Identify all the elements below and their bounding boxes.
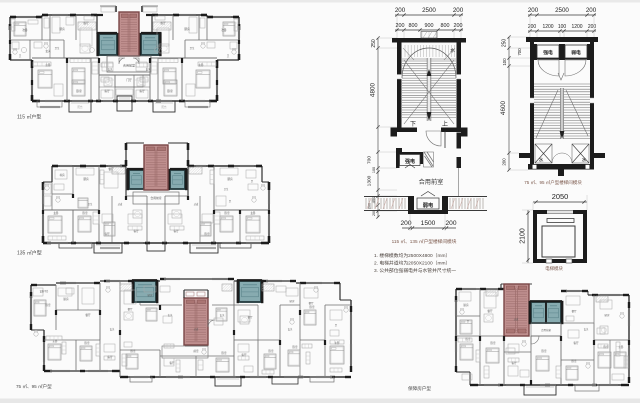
svg-text:100: 100 <box>502 58 507 66</box>
svg-text:合用前室: 合用前室 <box>541 328 552 332</box>
svg-text:卧室: 卧室 <box>465 337 471 341</box>
svg-text:卧室: 卧室 <box>76 89 82 93</box>
svg-text:主卧: 主卧 <box>52 339 58 343</box>
svg-text:水: 水 <box>450 47 455 53</box>
svg-text:次卧: 次卧 <box>221 28 227 32</box>
svg-text:200: 200 <box>396 23 405 29</box>
svg-text:客厅: 客厅 <box>133 229 139 233</box>
svg-text:主卧: 主卧 <box>45 63 51 67</box>
svg-text:水: 水 <box>582 157 587 164</box>
svg-text:200: 200 <box>454 23 463 29</box>
svg-text:主卧: 主卧 <box>53 211 59 215</box>
svg-text:卧室: 卧室 <box>82 211 88 215</box>
svg-text:1300: 1300 <box>367 175 373 186</box>
svg-text:200: 200 <box>588 24 597 30</box>
svg-text:餐厅: 餐厅 <box>308 301 314 305</box>
svg-text:下: 下 <box>410 121 416 128</box>
svg-text:卧室: 卧室 <box>541 349 547 353</box>
svg-text:卧室: 卧室 <box>130 349 136 353</box>
svg-text:书房: 书房 <box>59 173 65 177</box>
svg-text:卧室: 卧室 <box>490 341 496 345</box>
svg-text:900: 900 <box>425 23 434 29</box>
svg-text:卫: 卫 <box>227 55 230 58</box>
svg-text:门厅: 门厅 <box>126 78 132 82</box>
svg-text:75 ㎡、95 ㎡户型楼梯间模块: 75 ㎡、95 ㎡户型楼梯间模块 <box>524 179 582 186</box>
svg-text:客厅: 客厅 <box>139 89 145 93</box>
svg-text:200: 200 <box>528 24 537 30</box>
svg-text:4600: 4600 <box>500 100 507 115</box>
svg-text:3. 公共部位强弱电井与水管井尺寸统一: 3. 公共部位强弱电井与水管井尺寸统一 <box>374 267 456 274</box>
svg-text:主卧: 主卧 <box>250 211 256 215</box>
svg-text:卫: 卫 <box>19 55 22 58</box>
svg-text:2500: 2500 <box>555 7 569 14</box>
svg-text:200: 200 <box>395 7 406 14</box>
svg-text:100: 100 <box>558 24 567 30</box>
svg-text:厨房: 厨房 <box>184 27 190 31</box>
svg-text:250: 250 <box>502 39 508 48</box>
svg-text:2. 电梯井道均为2050X2100（mm）: 2. 电梯井道均为2050X2100（mm） <box>374 260 450 267</box>
svg-text:卧室: 卧室 <box>571 359 577 363</box>
svg-text:主卧: 主卧 <box>198 63 204 67</box>
svg-text:1200: 1200 <box>571 24 582 30</box>
svg-text:餐厅: 餐厅 <box>247 315 253 319</box>
svg-text:次卧: 次卧 <box>22 28 28 32</box>
svg-text:75 ㎡、95 ㎡户型: 75 ㎡、95 ㎡户型 <box>16 383 52 390</box>
svg-text:合用前室: 合用前室 <box>123 63 135 68</box>
svg-text:餐厅: 餐厅 <box>571 309 577 313</box>
svg-text:1. 楼梯模数均为2500X4800（mm）: 1. 楼梯模数均为2500X4800（mm） <box>374 252 450 259</box>
svg-text:200: 200 <box>445 220 456 227</box>
svg-text:200: 200 <box>586 7 597 14</box>
svg-text:玄关: 玄关 <box>220 313 225 317</box>
svg-text:强电: 强电 <box>405 158 415 165</box>
svg-text:主卧: 主卧 <box>618 345 624 349</box>
svg-text:电梯模块: 电梯模块 <box>545 265 563 272</box>
svg-text:厨房: 厨房 <box>147 293 153 297</box>
svg-text:1500: 1500 <box>421 220 436 227</box>
svg-text:客厅: 客厅 <box>241 353 247 357</box>
svg-text:200: 200 <box>453 7 464 14</box>
svg-text:弱电: 弱电 <box>423 201 434 209</box>
svg-text:厨房: 厨房 <box>83 177 89 181</box>
svg-text:2500: 2500 <box>422 7 436 14</box>
svg-text:200: 200 <box>502 158 507 166</box>
svg-text:水: 水 <box>539 157 544 164</box>
svg-text:卧室: 卧室 <box>204 232 210 236</box>
svg-text:厨房: 厨房 <box>59 27 65 31</box>
svg-text:弱电: 弱电 <box>571 49 581 56</box>
svg-text:卧室: 卧室 <box>45 303 51 307</box>
svg-text:115 ㎡、135 ㎡户型楼梯间模块: 115 ㎡、135 ㎡户型楼梯间模块 <box>392 238 457 245</box>
svg-text:卫生: 卫生 <box>190 46 195 50</box>
svg-text:厨房: 厨房 <box>604 313 610 317</box>
svg-text:800: 800 <box>409 23 418 29</box>
svg-text:100: 100 <box>372 167 376 173</box>
svg-text:115 ㎡户型: 115 ㎡户型 <box>17 114 41 121</box>
svg-text:2050: 2050 <box>552 192 568 201</box>
svg-text:4800: 4800 <box>370 82 377 97</box>
svg-text:餐厅: 餐厅 <box>127 307 133 311</box>
svg-text:上: 上 <box>442 120 448 128</box>
svg-text:阳台: 阳台 <box>77 105 83 109</box>
svg-text:卧室: 卧室 <box>224 211 230 215</box>
svg-text:厨房: 厨房 <box>463 303 469 307</box>
svg-text:前室: 前室 <box>193 349 199 353</box>
svg-text:厨房: 厨房 <box>63 297 69 301</box>
svg-text:合用前室: 合用前室 <box>419 178 444 186</box>
svg-text:厨房: 厨房 <box>289 299 295 303</box>
svg-text:强电: 强电 <box>543 49 553 56</box>
svg-text:客厅: 客厅 <box>511 361 517 365</box>
svg-text:合用前室: 合用前室 <box>150 196 161 200</box>
svg-text:客厅: 客厅 <box>573 341 579 345</box>
svg-text:卧室: 卧室 <box>167 89 173 93</box>
svg-text:卧室: 卧室 <box>292 345 298 349</box>
svg-text:餐厅: 餐厅 <box>85 313 91 317</box>
svg-text:200: 200 <box>528 7 539 14</box>
svg-text:卧室: 卧室 <box>221 351 227 355</box>
svg-text:700: 700 <box>517 48 522 56</box>
svg-text:700: 700 <box>367 156 373 164</box>
svg-text:卧室: 卧室 <box>309 305 315 309</box>
svg-text:800: 800 <box>441 23 450 29</box>
svg-text:卧室: 卧室 <box>84 341 90 345</box>
svg-text:1200: 1200 <box>542 24 553 30</box>
svg-text:餐厅: 餐厅 <box>487 309 493 313</box>
svg-text:保障房户型: 保障房户型 <box>408 385 431 392</box>
svg-text:阳台: 阳台 <box>161 105 167 109</box>
svg-text:135 ㎡户型: 135 ㎡户型 <box>17 250 42 257</box>
svg-text:客厅: 客厅 <box>107 355 113 359</box>
svg-text:厨房: 厨房 <box>227 177 233 181</box>
svg-text:卫生: 卫生 <box>55 46 60 50</box>
svg-text:卧室: 卧室 <box>268 349 274 353</box>
svg-text:250: 250 <box>371 39 377 48</box>
svg-text:餐厅: 餐厅 <box>108 167 114 171</box>
svg-text:2100: 2100 <box>520 228 527 244</box>
svg-text:客厅: 客厅 <box>104 89 110 93</box>
